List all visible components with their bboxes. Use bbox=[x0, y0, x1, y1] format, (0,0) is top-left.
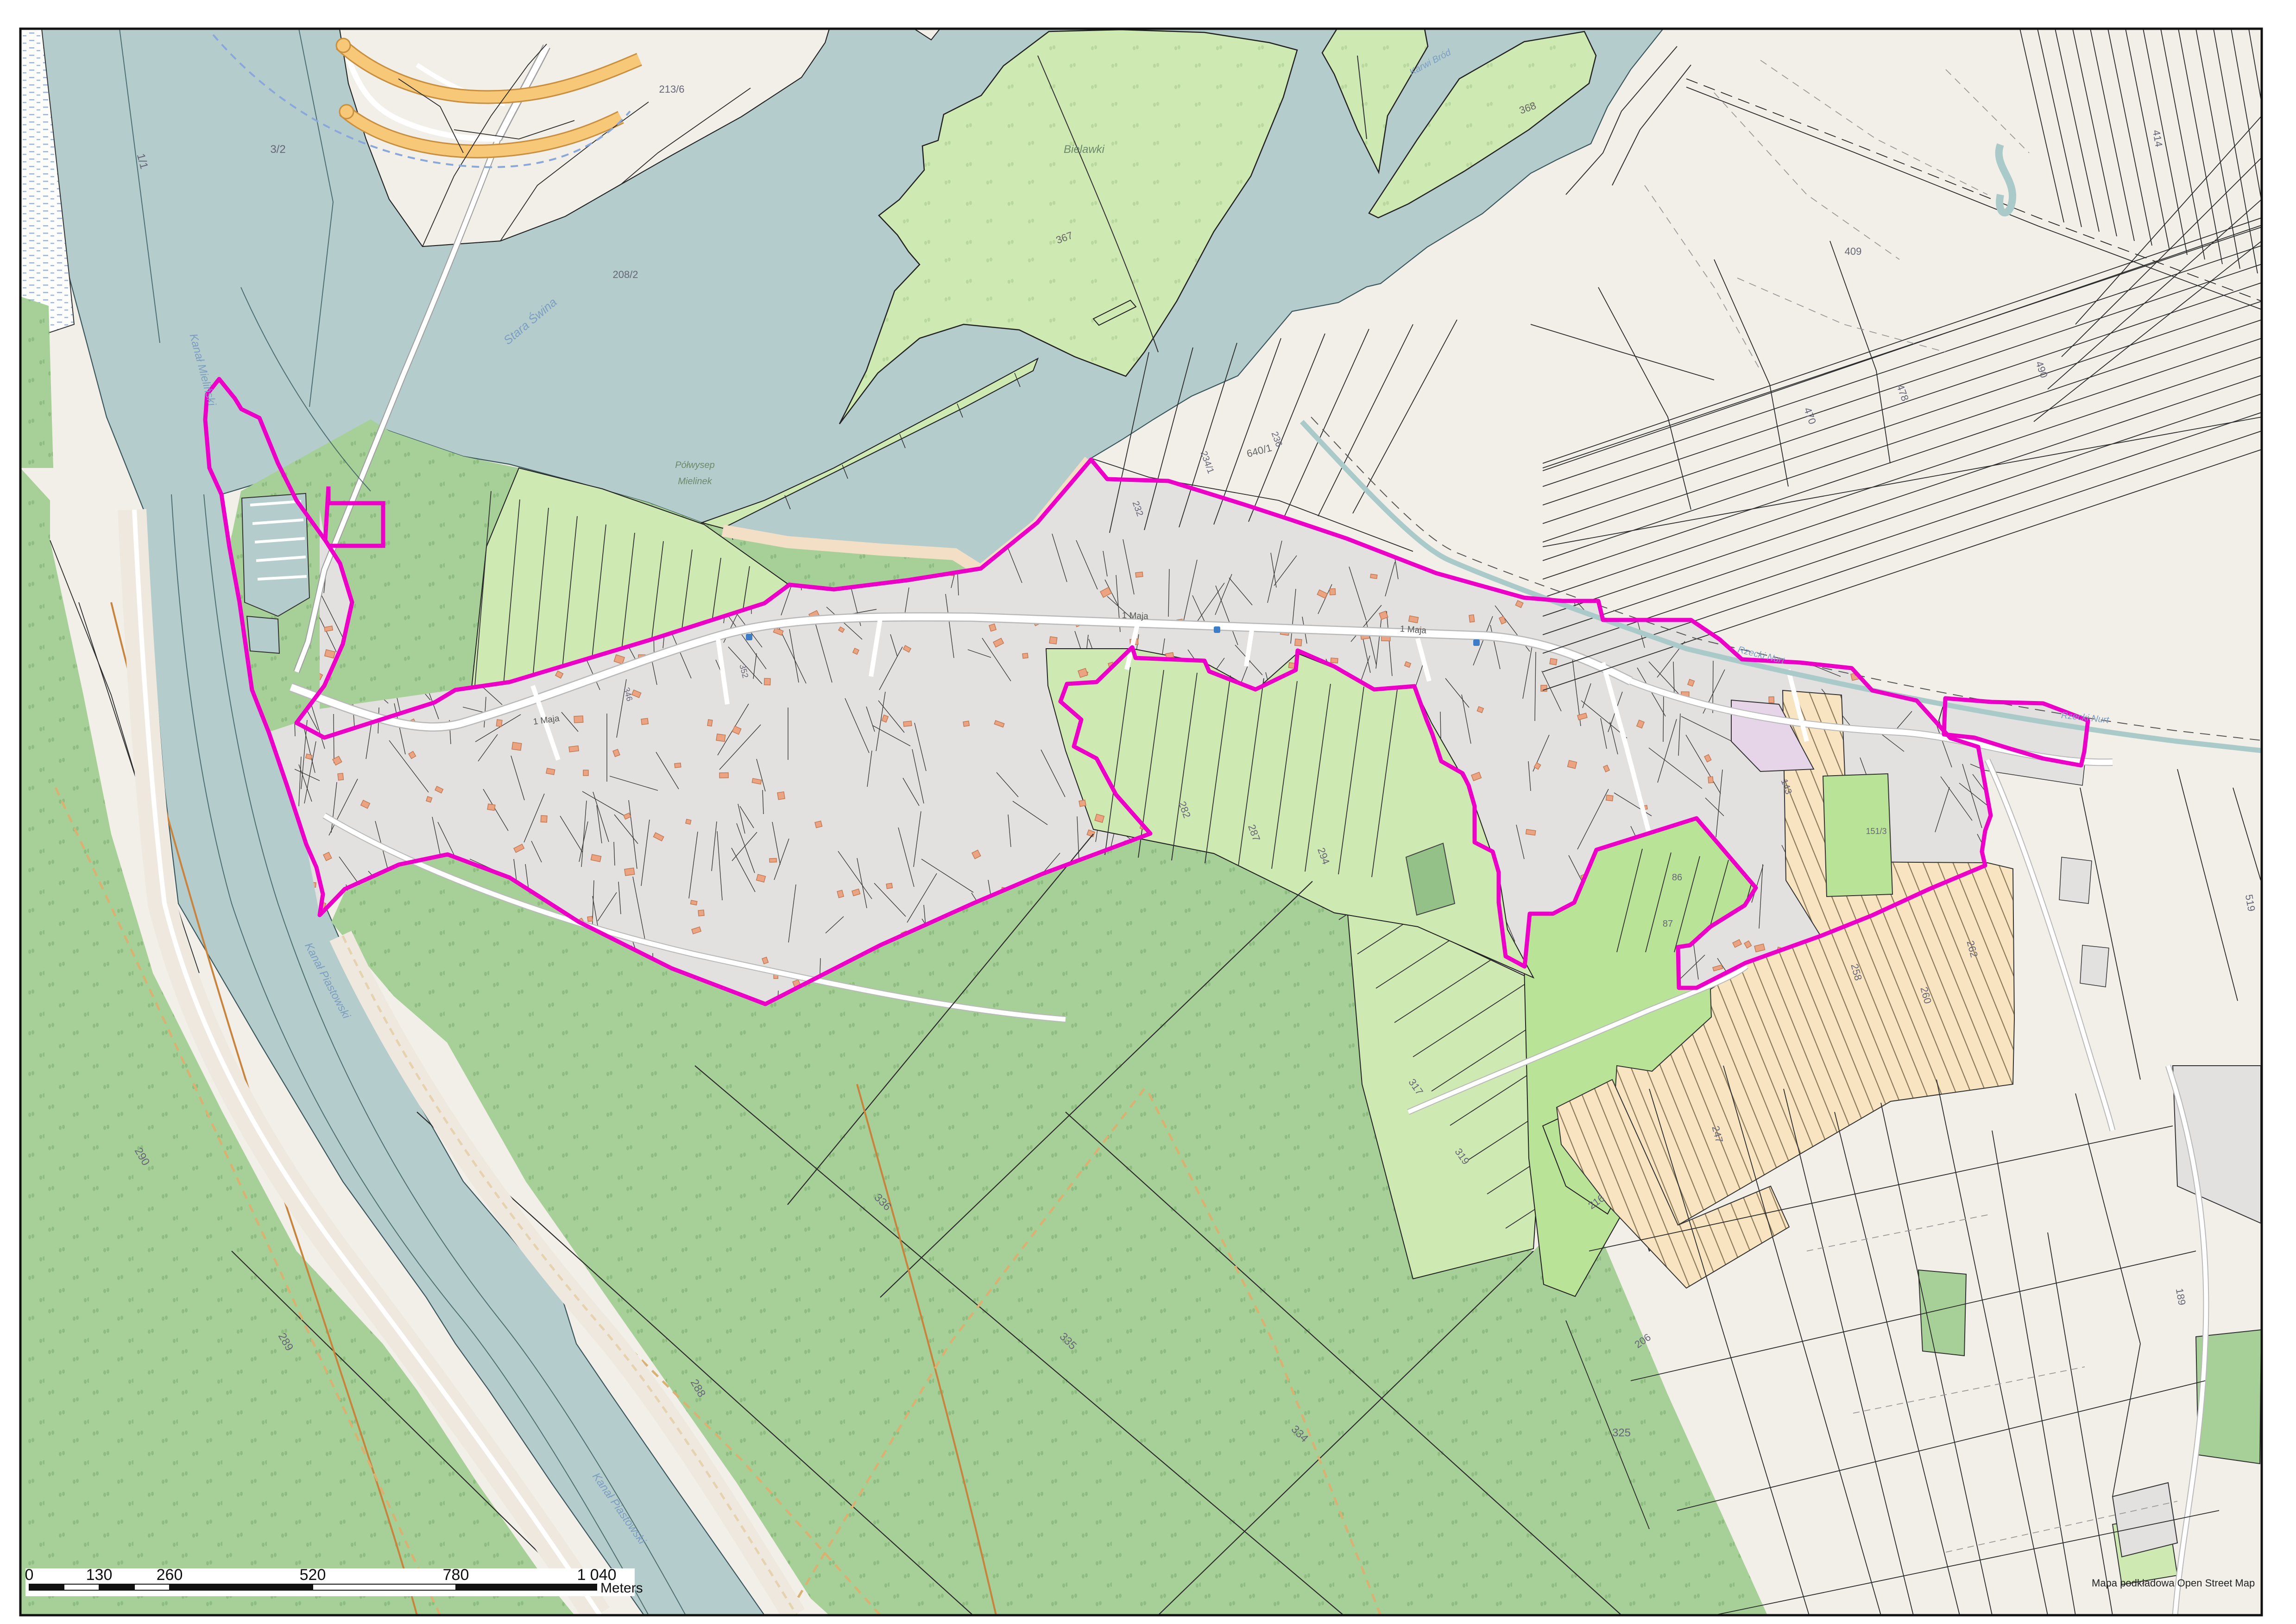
svg-text:Meters: Meters bbox=[600, 1580, 643, 1596]
svg-text:260: 260 bbox=[157, 1566, 183, 1584]
svg-text:213/6: 213/6 bbox=[659, 83, 684, 95]
svg-text:520: 520 bbox=[300, 1566, 326, 1584]
svg-text:325: 325 bbox=[1612, 1427, 1631, 1439]
svg-text:409: 409 bbox=[1845, 246, 1862, 257]
svg-text:Mapa podkładowa Open Street Ma: Mapa podkładowa Open Street Map bbox=[2092, 1577, 2255, 1589]
svg-text:130: 130 bbox=[86, 1566, 113, 1584]
svg-text:151/3: 151/3 bbox=[1866, 827, 1886, 836]
svg-text:3/2: 3/2 bbox=[270, 143, 285, 156]
svg-text:208/2: 208/2 bbox=[612, 269, 638, 280]
svg-text:86: 86 bbox=[1672, 872, 1682, 883]
svg-text:780: 780 bbox=[443, 1566, 469, 1584]
svg-text:Mielinek: Mielinek bbox=[678, 476, 712, 487]
svg-text:Półwysep: Półwysep bbox=[675, 460, 715, 470]
svg-text:87: 87 bbox=[1663, 919, 1673, 929]
svg-text:0: 0 bbox=[25, 1566, 34, 1584]
svg-text:1 Maja: 1 Maja bbox=[1400, 624, 1427, 636]
svg-text:Bielawki: Bielawki bbox=[1064, 143, 1105, 156]
svg-text:1 Maja: 1 Maja bbox=[1122, 611, 1148, 621]
